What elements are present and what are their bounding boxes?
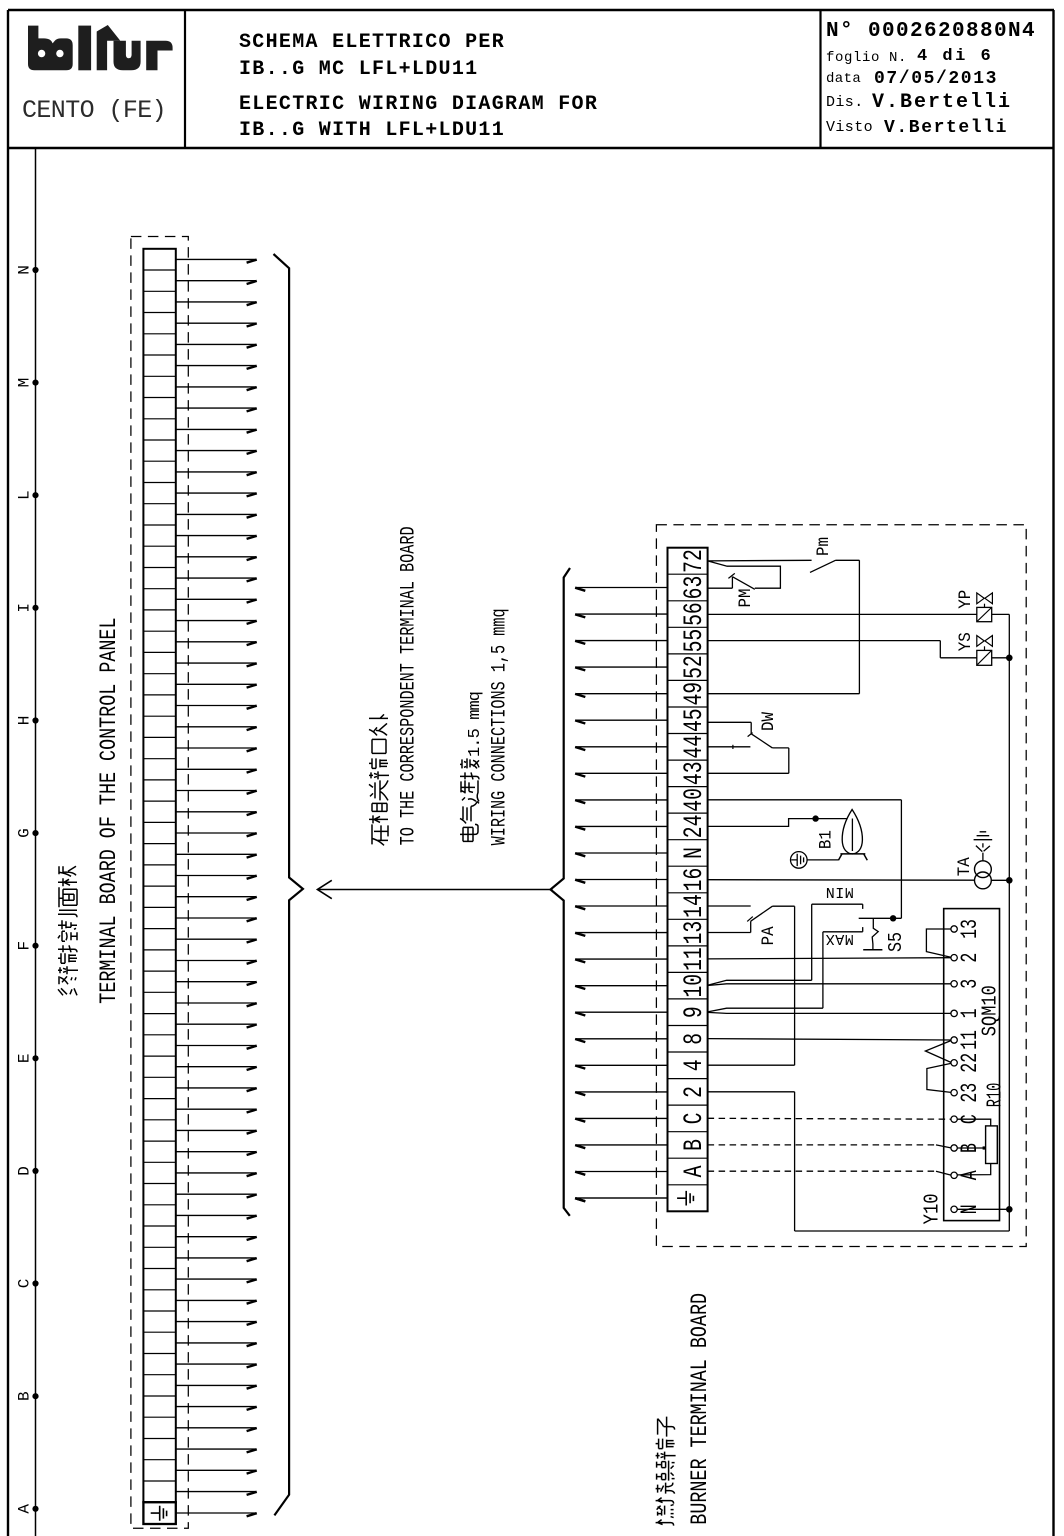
svg-text:data: data — [826, 71, 861, 87]
svg-text:63: 63 — [679, 576, 710, 600]
svg-text:TO THE CORRESPONDENT TERMINAL: TO THE CORRESPONDENT TERMINAL BOARD — [398, 526, 421, 845]
svg-text:D: D — [16, 1166, 34, 1176]
svg-text:56: 56 — [679, 602, 710, 626]
svg-text:L: L — [16, 490, 34, 500]
svg-text:14: 14 — [679, 894, 710, 918]
svg-text:8: 8 — [679, 1033, 710, 1045]
svg-text:52: 52 — [679, 655, 710, 679]
svg-text:G: G — [16, 828, 34, 838]
svg-text:BURNER TERMINAL BOARD: BURNER TERMINAL BOARD — [688, 1293, 713, 1525]
svg-text:10: 10 — [679, 974, 710, 998]
svg-text:SCHEMA ELETTRICO PER: SCHEMA ELETTRICO PER — [239, 31, 505, 54]
svg-text:YP: YP — [956, 590, 976, 609]
svg-text:2: 2 — [958, 953, 984, 963]
svg-text:CENTO (FE): CENTO (FE) — [22, 96, 166, 125]
svg-text:C: C — [16, 1279, 34, 1289]
svg-text:72: 72 — [679, 549, 710, 573]
svg-text:F: F — [16, 941, 34, 951]
svg-text:H: H — [16, 716, 34, 726]
svg-text:PM: PM — [736, 588, 756, 607]
svg-text:40: 40 — [679, 788, 710, 812]
svg-text:13: 13 — [679, 921, 710, 945]
svg-text:TERMINAL BOARD OF THE CONTROL: TERMINAL BOARD OF THE CONTROL PANEL — [97, 618, 122, 1004]
svg-text:B: B — [679, 1139, 710, 1151]
svg-text:1.5 mmq: 1.5 mmq — [466, 692, 485, 757]
svg-text:WIRING CONNECTIONS 1,5 mmq: WIRING CONNECTIONS 1,5 mmq — [489, 608, 512, 845]
svg-text:16: 16 — [679, 868, 710, 892]
svg-text:V.Bertelli: V.Bertelli — [884, 118, 1008, 138]
svg-text:SQM10: SQM10 — [978, 985, 1002, 1036]
svg-text:4 di 6: 4 di 6 — [917, 47, 993, 66]
svg-text:N° 0002620880N4: N° 0002620880N4 — [826, 20, 1036, 43]
svg-text:S5: S5 — [886, 932, 907, 952]
svg-text:R10: R10 — [984, 1083, 1008, 1108]
svg-text:E: E — [16, 1053, 34, 1063]
svg-text:MAX: MAX — [825, 930, 854, 947]
svg-text:M: M — [16, 378, 34, 388]
svg-text:ELECTRIC WIRING DIAGRAM FOR: ELECTRIC WIRING DIAGRAM FOR — [239, 93, 598, 116]
svg-text:Dis.: Dis. — [826, 94, 864, 111]
svg-text:C: C — [679, 1112, 710, 1124]
svg-text:4: 4 — [679, 1059, 710, 1071]
svg-text:foglio N.: foglio N. — [826, 50, 907, 66]
svg-text:13: 13 — [958, 919, 984, 939]
svg-text:YS: YS — [956, 632, 976, 651]
svg-text:49: 49 — [679, 682, 710, 706]
svg-text:22: 22 — [958, 1053, 984, 1073]
svg-text:N: N — [679, 847, 710, 859]
svg-text:07/05/2013: 07/05/2013 — [874, 69, 998, 89]
svg-text:V.Bertelli: V.Bertelli — [872, 91, 1012, 114]
svg-text:2: 2 — [679, 1086, 710, 1098]
svg-text:Y10: Y10 — [920, 1193, 944, 1224]
svg-text:I: I — [16, 603, 34, 613]
svg-text:Pm: Pm — [814, 537, 834, 556]
svg-text:B1: B1 — [817, 830, 837, 849]
svg-text:44: 44 — [679, 735, 710, 759]
svg-text:PA: PA — [759, 926, 779, 946]
svg-text:A: A — [679, 1165, 710, 1178]
svg-text:N: N — [16, 265, 34, 275]
svg-text:23: 23 — [958, 1083, 984, 1103]
svg-text:24: 24 — [679, 815, 710, 839]
svg-text:MIN: MIN — [825, 883, 854, 900]
svg-text:Visto: Visto — [826, 119, 873, 136]
svg-text:11: 11 — [679, 947, 710, 971]
svg-text:A: A — [16, 1504, 34, 1514]
svg-text:IB..G MC LFL+LDU11: IB..G MC LFL+LDU11 — [239, 58, 478, 81]
svg-text:45: 45 — [679, 708, 710, 732]
svg-text:43: 43 — [679, 761, 710, 785]
svg-text:55: 55 — [679, 629, 710, 653]
svg-text:9: 9 — [679, 1006, 710, 1018]
svg-text:TA: TA — [955, 856, 975, 876]
svg-text:DW: DW — [759, 711, 779, 731]
svg-text:IB..G WITH LFL+LDU11: IB..G WITH LFL+LDU11 — [239, 119, 505, 142]
svg-text:B: B — [16, 1391, 34, 1401]
